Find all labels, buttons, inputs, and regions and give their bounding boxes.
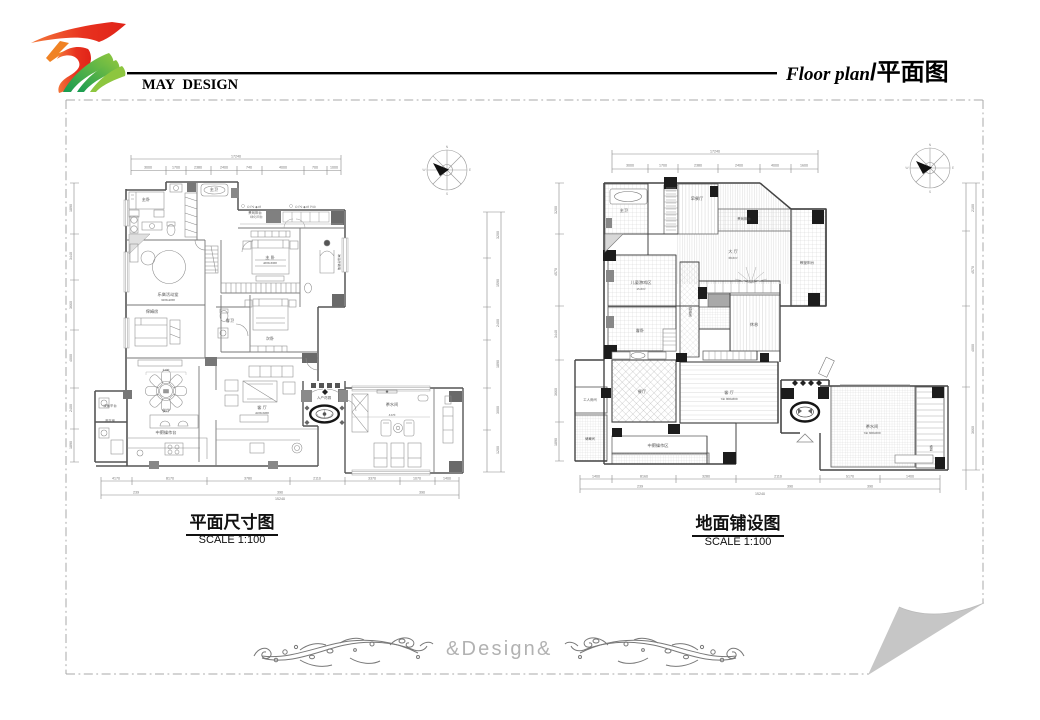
svg-text:W: W — [905, 166, 909, 170]
svg-text:700: 700 — [312, 166, 318, 170]
svg-text:餐厅: 餐厅 — [638, 389, 646, 394]
svg-text:儿童游戏区: 儿童游戏区 — [631, 280, 652, 285]
svg-text:2110: 2110 — [774, 475, 782, 479]
svg-text:4000: 4000 — [279, 166, 287, 170]
svg-text:3200x4000: 3200x4000 — [161, 298, 175, 302]
svg-text:2110: 2110 — [313, 477, 321, 481]
svg-text:客卧: 客卧 — [636, 328, 645, 333]
svg-text:E: E — [469, 168, 472, 172]
svg-text:2100: 2100 — [971, 204, 975, 212]
svg-text:景观阳台: 景观阳台 — [248, 211, 262, 215]
svg-text:O P9 ◆#8 P90: O P9 ◆#8 P90 — [295, 205, 316, 209]
svg-text:3000: 3000 — [496, 406, 500, 414]
svg-text:2380: 2380 — [694, 164, 702, 168]
svg-text:入户花园: 入户花园 — [317, 395, 332, 400]
svg-text:茶水间: 茶水间 — [866, 424, 879, 429]
svg-text:淋浴房玻璃: 淋浴房玻璃 — [337, 254, 341, 271]
svg-text:3200: 3200 — [554, 206, 558, 214]
svg-text:4000x3300: 4000x3300 — [263, 261, 277, 265]
svg-text:N: N — [446, 145, 449, 149]
svg-text:1000: 1000 — [330, 166, 338, 170]
svg-text:客 厅: 客 厅 — [257, 405, 267, 410]
svg-text:8160: 8160 — [640, 475, 648, 479]
svg-text:2400: 2400 — [69, 404, 73, 412]
svg-text:餐厅: 餐厅 — [162, 408, 170, 413]
svg-text:E: E — [952, 166, 955, 170]
svg-text:景观阳台: 景观阳台 — [737, 217, 751, 221]
svg-text:1400: 1400 — [906, 475, 914, 479]
svg-text:390: 390 — [277, 491, 283, 495]
svg-text:15.6m²: 15.6m² — [636, 287, 645, 291]
svg-text:3200: 3200 — [496, 231, 500, 239]
svg-text:4470: 4470 — [389, 413, 396, 417]
svg-text:主卫: 主卫 — [210, 187, 218, 192]
svg-text:740: 740 — [246, 166, 252, 170]
svg-text:3440: 3440 — [69, 252, 73, 260]
svg-text:390: 390 — [419, 491, 425, 495]
svg-text:客 厅: 客 厅 — [724, 390, 734, 395]
svg-text:1070: 1070 — [413, 477, 421, 481]
svg-text:2400: 2400 — [496, 319, 500, 327]
svg-text:3660: 3660 — [554, 388, 558, 396]
svg-text:洗衣房: 洗衣房 — [105, 419, 116, 423]
svg-text:8170: 8170 — [166, 477, 174, 481]
svg-text:3000: 3000 — [626, 164, 634, 168]
svg-text:390: 390 — [787, 485, 793, 489]
svg-text:3440: 3440 — [554, 330, 558, 338]
svg-text:中厨操作台: 中厨操作台 — [156, 430, 177, 435]
svg-text:S: S — [446, 192, 449, 196]
svg-text:1400: 1400 — [443, 477, 451, 481]
svg-text:3780: 3780 — [244, 477, 252, 481]
svg-text:4000: 4000 — [69, 354, 73, 362]
svg-text:中厨操作区: 中厨操作区 — [648, 443, 669, 448]
svg-text:4170: 4170 — [112, 477, 120, 481]
svg-text:茶水间: 茶水间 — [386, 402, 399, 407]
svg-text:Tile 800x800: Tile 800x800 — [720, 397, 737, 401]
svg-text:设备平台: 设备平台 — [103, 404, 117, 408]
svg-text:客卫: 客卫 — [226, 318, 234, 323]
svg-text:O P9 ◆#8: O P9 ◆#8 — [247, 205, 261, 209]
svg-text:1200: 1200 — [496, 446, 500, 454]
svg-text:2400: 2400 — [220, 166, 228, 170]
svg-text:3660: 3660 — [971, 426, 975, 434]
svg-text:38.6m²: 38.6m² — [728, 256, 737, 260]
svg-text:4000: 4000 — [971, 344, 975, 352]
svg-text:1400: 1400 — [592, 475, 600, 479]
svg-text:休息: 休息 — [750, 322, 758, 327]
svg-text:Tile 600x600: Tile 600x600 — [863, 431, 880, 435]
svg-text:主 卧: 主 卧 — [265, 255, 275, 260]
svg-text:1890: 1890 — [69, 441, 73, 449]
svg-text:390: 390 — [867, 485, 873, 489]
svg-text:17240: 17240 — [710, 150, 720, 154]
svg-text:工人房间: 工人房间 — [583, 398, 597, 402]
svg-text:2400: 2400 — [163, 368, 170, 372]
svg-text:次卧: 次卧 — [266, 336, 275, 341]
svg-text:15240: 15240 — [275, 497, 285, 501]
svg-text:1890: 1890 — [69, 204, 73, 212]
svg-text:4000: 4000 — [771, 164, 779, 168]
svg-text:W: W — [422, 168, 426, 172]
svg-text:239: 239 — [133, 491, 139, 495]
svg-text:储藏间: 储藏间 — [585, 437, 596, 441]
svg-text:15240: 15240 — [755, 492, 765, 496]
svg-text:17240: 17240 — [231, 155, 241, 159]
svg-text:2380: 2380 — [194, 166, 202, 170]
svg-text:主卧: 主卧 — [142, 197, 151, 202]
svg-text:早餐厅: 早餐厅 — [691, 196, 704, 201]
svg-text:1700: 1700 — [172, 166, 180, 170]
svg-text:5170: 5170 — [846, 475, 854, 479]
svg-text:3370: 3370 — [368, 477, 376, 481]
svg-text:2400: 2400 — [735, 164, 743, 168]
svg-text:瞭望阳台: 瞭望阳台 — [800, 260, 815, 265]
svg-text:1590: 1590 — [496, 279, 500, 287]
svg-text:绿化阳台: 绿化阳台 — [250, 215, 263, 219]
svg-text:楼梯: 楼梯 — [929, 445, 933, 452]
svg-text:1890: 1890 — [554, 438, 558, 446]
svg-text:3000: 3000 — [144, 166, 152, 170]
svg-text:4500x5800: 4500x5800 — [255, 411, 269, 415]
svg-text:4570: 4570 — [971, 266, 975, 274]
svg-text:主卫: 主卫 — [620, 208, 628, 213]
svg-text:乐高活动室: 乐高活动室 — [158, 292, 179, 297]
svg-text:S: S — [929, 190, 932, 194]
svg-text:大 厅: 大 厅 — [728, 249, 738, 254]
svg-text:保姆房: 保姆房 — [146, 309, 159, 314]
svg-text:239: 239 — [637, 485, 643, 489]
svg-text:1600: 1600 — [800, 164, 808, 168]
svg-text:N: N — [929, 143, 932, 147]
svg-text:3280: 3280 — [702, 475, 710, 479]
svg-text:3660: 3660 — [69, 301, 73, 309]
svg-text:4570: 4570 — [554, 268, 558, 276]
svg-text:楼梯间: 楼梯间 — [688, 307, 692, 318]
svg-text:1700: 1700 — [659, 164, 667, 168]
svg-text:1890: 1890 — [496, 360, 500, 368]
